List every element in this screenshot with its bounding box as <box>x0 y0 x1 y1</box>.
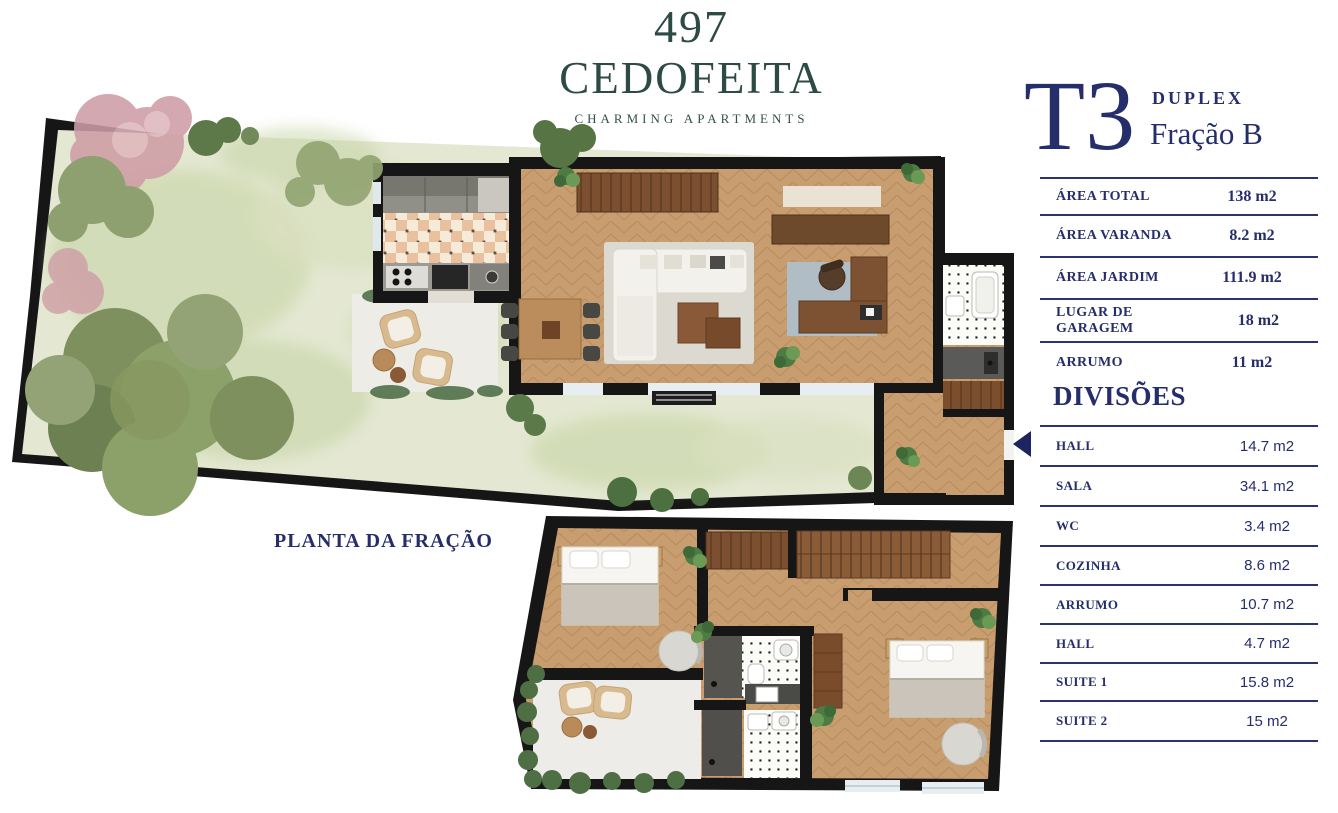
brand-name: CEDOFEITA <box>519 55 864 102</box>
area-row: ARRUMO 11 m2 <box>1040 341 1318 383</box>
division-label: HALL <box>1040 438 1094 454</box>
kitchen-tile-floor <box>383 213 509 263</box>
division-value: 14.7 m2 <box>1216 438 1318 455</box>
division-label: SUITE 2 <box>1040 713 1108 729</box>
shower <box>704 636 742 698</box>
division-label: COZINHA <box>1040 558 1121 574</box>
unit-kind: DUPLEX <box>1152 88 1244 109</box>
toilet <box>748 664 764 684</box>
partition-cabinet <box>772 215 889 244</box>
plan-caption: PLANTA DA FRAÇÃO <box>274 530 493 553</box>
area-value: 111.9 m2 <box>1186 269 1318 287</box>
staircase <box>706 532 790 569</box>
division-row: HALL 14.7 m2 <box>1040 425 1318 465</box>
area-row: ÁREA TOTAL 138 m2 <box>1040 177 1318 214</box>
area-label: ÁREA JARDIM <box>1040 270 1159 286</box>
entrance-arrow-icon <box>1013 431 1031 457</box>
staircase <box>577 173 718 212</box>
unit-fraction: Fração B <box>1150 116 1263 152</box>
division-value: 3.4 m2 <box>1216 518 1318 535</box>
area-label: ARRUMO <box>1040 355 1123 371</box>
area-value: 8.2 m2 <box>1186 227 1318 245</box>
division-label: HALL <box>1040 636 1094 652</box>
brand-number: 497 <box>519 2 864 53</box>
sink <box>748 714 768 730</box>
shower <box>702 710 742 776</box>
terrace-table <box>562 717 582 737</box>
lower-floor-plan <box>513 516 1013 794</box>
area-label: ÁREA VARANDA <box>1040 228 1172 244</box>
division-row: SALA 34.1 m2 <box>1040 465 1318 505</box>
exterior-step <box>652 391 716 405</box>
living-room <box>501 157 945 405</box>
division-value: 15.8 m2 <box>1216 674 1318 691</box>
terrace-table <box>583 725 597 739</box>
brand-tagline: CHARMING APARTMENTS <box>519 111 864 127</box>
divisions-title: DIVISÕES <box>1053 381 1186 412</box>
kitchen-sink <box>486 271 498 283</box>
bathrooms <box>694 626 814 782</box>
wardrobe <box>797 531 950 578</box>
division-value: 8.6 m2 <box>1216 557 1318 574</box>
patio-table <box>373 349 395 371</box>
sink <box>756 687 778 702</box>
area-row: ÁREA JARDIM 111.9 m2 <box>1040 256 1318 298</box>
division-label: SUITE 1 <box>1040 674 1108 690</box>
division-label: SALA <box>1040 478 1092 494</box>
coffee-table <box>706 318 740 348</box>
kitchen <box>373 163 519 303</box>
division-row: ARRUMO 10.7 m2 <box>1040 584 1318 623</box>
division-label: ARRUMO <box>1040 597 1118 613</box>
division-value: 4.7 m2 <box>1216 635 1318 652</box>
terrace-chair <box>592 685 632 720</box>
area-value: 18 m2 <box>1199 312 1318 330</box>
division-row: SUITE 1 15.8 m2 <box>1040 662 1318 700</box>
division-value: 34.1 m2 <box>1216 478 1318 495</box>
unit-typology: T3 <box>1024 66 1135 166</box>
division-row: SUITE 2 15 m2 <box>1040 700 1318 742</box>
area-row: ÁREA VARANDA 8.2 m2 <box>1040 214 1318 256</box>
division-row: HALL 4.7 m2 <box>1040 623 1318 662</box>
terrace-chair <box>558 681 599 717</box>
area-value: 11 m2 <box>1186 354 1318 372</box>
area-value: 138 m2 <box>1186 188 1318 206</box>
upper-floor-plan <box>12 94 1031 516</box>
dining-set <box>501 299 600 361</box>
patio-table <box>390 367 406 383</box>
division-value: 10.7 m2 <box>1216 596 1318 613</box>
division-row: WC 3.4 m2 <box>1040 505 1318 545</box>
garden-patio <box>352 287 503 400</box>
armchair <box>942 723 984 765</box>
hall-cabinet <box>814 634 842 708</box>
division-row: COZINHA 8.6 m2 <box>1040 545 1318 584</box>
doormat <box>783 186 881 207</box>
division-label: WC <box>1040 518 1079 534</box>
area-label: ÁREA TOTAL <box>1040 189 1150 205</box>
division-value: 15 m2 <box>1216 713 1318 730</box>
area-row: LUGAR DE GARAGEM 18 m2 <box>1040 298 1318 341</box>
patio-chair <box>411 347 453 387</box>
brand-logo: 497 CEDOFEITA CHARMING APARTMENTS <box>519 2 864 127</box>
wc-sink <box>946 296 964 316</box>
office-desk <box>787 257 887 336</box>
area-label: LUGAR DE GARAGEM <box>1040 305 1199 337</box>
terrace <box>517 665 703 794</box>
